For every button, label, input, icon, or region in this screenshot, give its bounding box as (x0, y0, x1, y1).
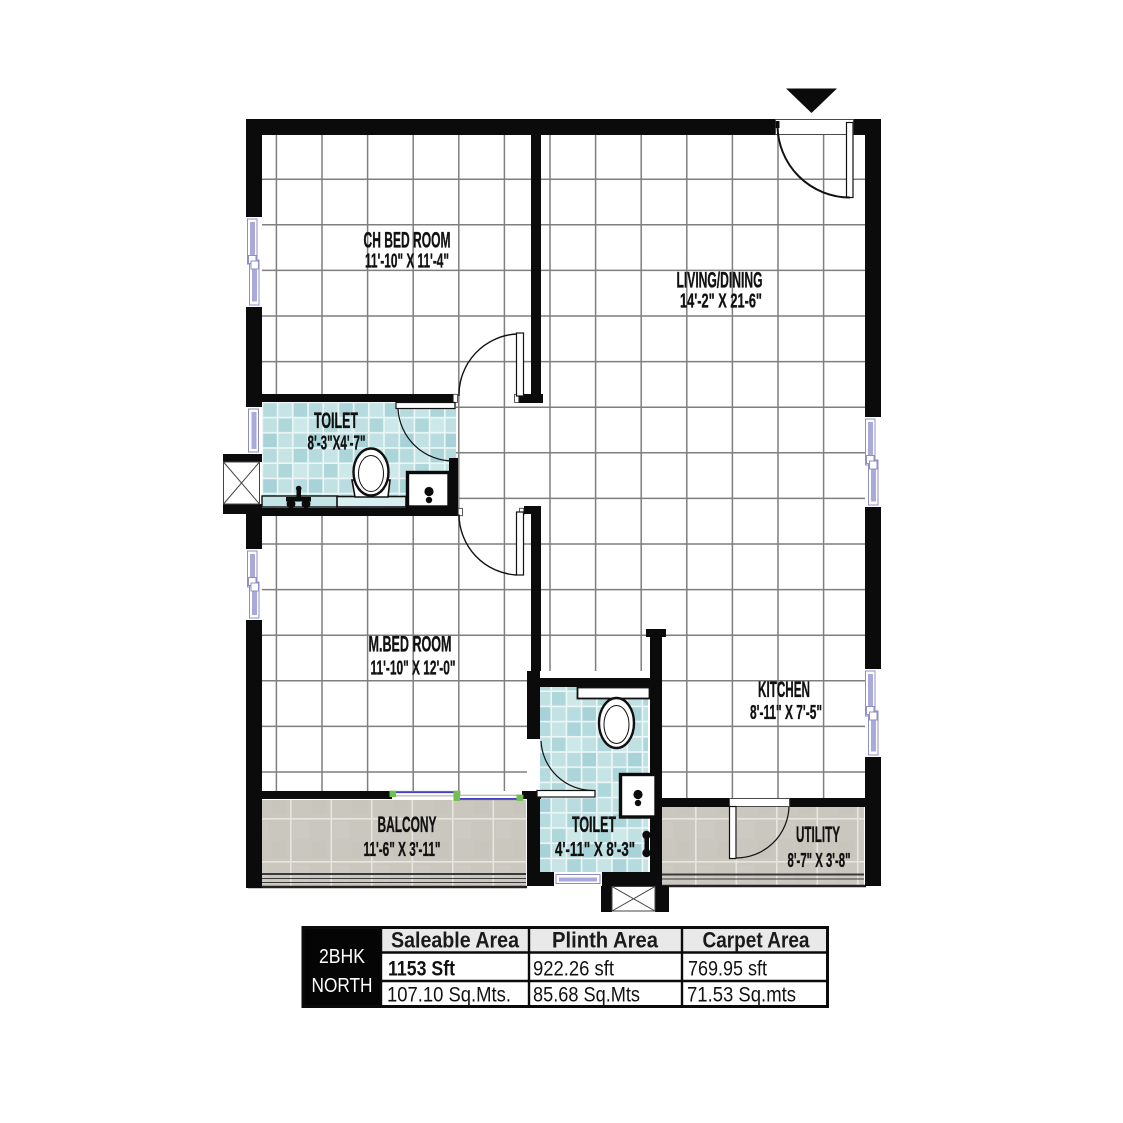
svg-text:8'-11" X 7'-5": 8'-11" X 7'-5" (750, 702, 822, 724)
svg-text:8'-7" X 3'-8": 8'-7" X 3'-8" (788, 850, 851, 872)
svg-text:11'-10" X 11'-4": 11'-10" X 11'-4" (365, 251, 449, 273)
svg-text:11'-6" X 3'-11": 11'-6" X 3'-11" (364, 839, 441, 861)
svg-text:922.26 sft: 922.26 sft (533, 958, 614, 981)
svg-text:769.95 sft: 769.95 sft (688, 958, 767, 981)
svg-text:Plinth Area: Plinth Area (552, 928, 659, 953)
svg-text:CH BED ROOM: CH BED ROOM (364, 228, 451, 253)
svg-text:11'-10" X 12'-0": 11'-10" X 12'-0" (371, 658, 456, 680)
svg-text:4'-11" X 8'-3": 4'-11" X 8'-3" (555, 839, 635, 861)
svg-text:M.BED ROOM: M.BED ROOM (369, 632, 452, 657)
svg-text:LIVING/DINING: LIVING/DINING (677, 268, 763, 293)
svg-text:Saleable Area: Saleable Area (391, 928, 520, 953)
svg-text:1153 Sft: 1153 Sft (388, 958, 455, 981)
svg-text:107.10 Sq.Mts.: 107.10 Sq.Mts. (387, 984, 511, 1007)
svg-text:KITCHEN: KITCHEN (758, 677, 810, 702)
svg-text:8'-3"X4'-7": 8'-3"X4'-7" (308, 433, 366, 455)
svg-text:NORTH: NORTH (312, 975, 373, 997)
svg-text:TOILET: TOILET (572, 812, 616, 837)
svg-text:14'-2" X 21-6": 14'-2" X 21-6" (680, 291, 762, 313)
svg-text:BALCONY: BALCONY (378, 812, 437, 837)
svg-text:TOILET: TOILET (314, 408, 358, 433)
svg-text:71.53 Sq.mts: 71.53 Sq.mts (687, 984, 796, 1007)
svg-text:85.68 Sq.Mts: 85.68 Sq.Mts (533, 984, 640, 1007)
svg-text:UTILITY: UTILITY (796, 822, 840, 847)
svg-text:Carpet Area: Carpet Area (703, 928, 811, 953)
svg-text:2BHK: 2BHK (319, 946, 366, 968)
